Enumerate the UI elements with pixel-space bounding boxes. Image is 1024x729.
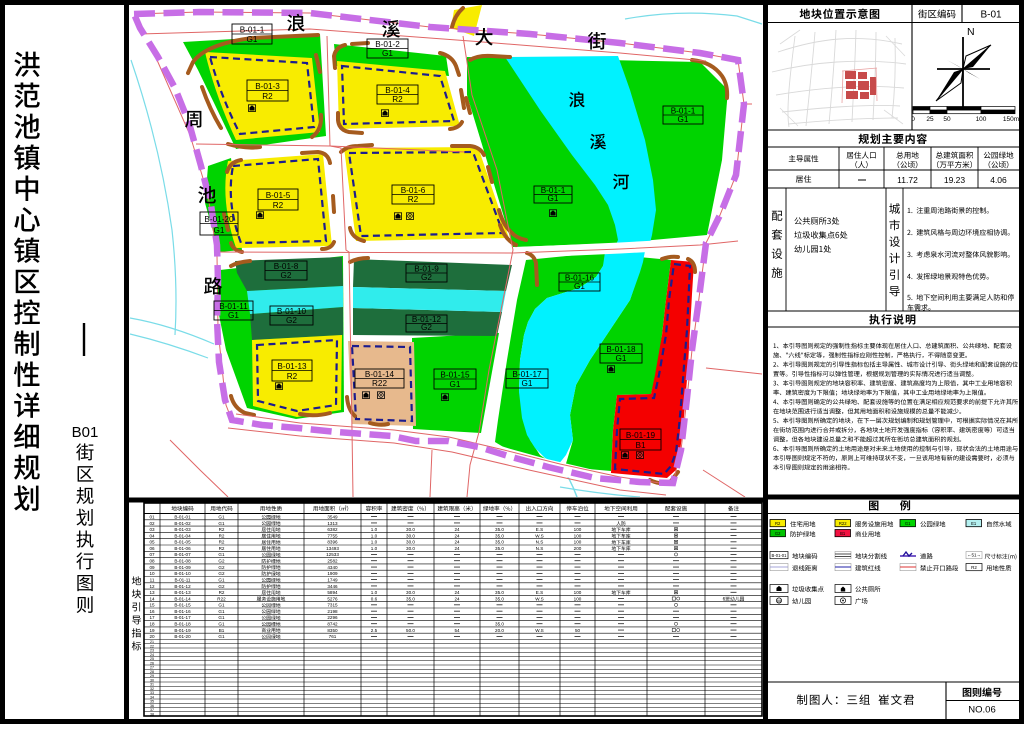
svg-text:G1: G1 xyxy=(382,49,393,58)
svg-text:B-01-10: B-01-10 xyxy=(277,307,307,316)
svg-text:G1: G1 xyxy=(214,226,225,235)
svg-text:35.0: 35.0 xyxy=(495,527,504,532)
svg-text:20: 20 xyxy=(149,634,155,639)
svg-text:G2: G2 xyxy=(218,559,225,564)
svg-text:5894: 5894 xyxy=(327,590,338,595)
svg-text:35.0: 35.0 xyxy=(495,546,504,551)
svg-text:B-01-12: B-01-12 xyxy=(174,584,191,589)
svg-text:01: 01 xyxy=(149,514,155,519)
svg-text:G1: G1 xyxy=(247,35,258,44)
svg-text:100: 100 xyxy=(976,116,987,123)
svg-text:B-01-19: B-01-19 xyxy=(174,628,191,633)
svg-text:24: 24 xyxy=(454,540,460,545)
svg-text:←51→: ←51→ xyxy=(967,553,981,558)
svg-text:B1: B1 xyxy=(840,531,846,536)
svg-text:761: 761 xyxy=(329,634,337,639)
svg-text:1.0: 1.0 xyxy=(371,590,378,595)
svg-text:19.23: 19.23 xyxy=(944,175,966,185)
svg-text:1.0: 1.0 xyxy=(371,527,378,532)
svg-text:B-01-15: B-01-15 xyxy=(174,603,191,608)
svg-text:G2: G2 xyxy=(421,323,432,332)
svg-text:B-01-13: B-01-13 xyxy=(174,590,191,595)
svg-text:06: 06 xyxy=(149,546,155,551)
svg-text:8396: 8396 xyxy=(327,540,338,545)
svg-text:17: 17 xyxy=(149,615,155,620)
svg-text:G1: G1 xyxy=(678,115,689,124)
svg-text:G1: G1 xyxy=(218,634,225,639)
svg-text:G2: G2 xyxy=(421,273,432,282)
svg-text:B-01-20: B-01-20 xyxy=(174,634,191,639)
svg-text:R22: R22 xyxy=(372,379,387,388)
svg-text:1749: 1749 xyxy=(327,577,338,582)
svg-text:08: 08 xyxy=(149,559,155,564)
svg-text:G2: G2 xyxy=(286,316,297,325)
svg-text:2296: 2296 xyxy=(327,615,338,620)
svg-text:6382: 6382 xyxy=(327,527,338,532)
svg-text:G1: G1 xyxy=(218,577,225,582)
svg-text:13: 13 xyxy=(149,590,155,595)
svg-text:35.0: 35.0 xyxy=(495,533,504,538)
svg-text:50.0: 50.0 xyxy=(406,628,415,633)
svg-text:G1: G1 xyxy=(218,603,225,608)
svg-text:G1: G1 xyxy=(548,194,559,203)
svg-text:B-01-20: B-01-20 xyxy=(204,215,234,224)
svg-text:30.0: 30.0 xyxy=(406,546,415,551)
svg-text:11.72: 11.72 xyxy=(897,175,918,185)
svg-text:19: 19 xyxy=(149,628,155,633)
svg-text:200: 200 xyxy=(574,546,582,551)
svg-text:B-01-06: B-01-06 xyxy=(174,546,191,551)
svg-text:2.5: 2.5 xyxy=(371,628,378,633)
svg-text:02: 02 xyxy=(149,521,155,526)
svg-text:R2: R2 xyxy=(219,546,225,551)
svg-text:R2: R2 xyxy=(219,590,225,595)
svg-text:12: 12 xyxy=(149,584,155,589)
svg-text:B-01-6: B-01-6 xyxy=(401,186,426,195)
svg-text:N.S: N.S xyxy=(536,540,544,545)
svg-text:B-01-14: B-01-14 xyxy=(365,370,395,379)
svg-text:30.0: 30.0 xyxy=(406,527,415,532)
svg-text:8742: 8742 xyxy=(327,622,338,627)
svg-text:N.S: N.S xyxy=(536,546,544,551)
svg-text:2582: 2582 xyxy=(327,559,338,564)
svg-text:R2: R2 xyxy=(392,95,403,104)
svg-text:NO.06: NO.06 xyxy=(968,705,995,716)
svg-text:B-01-11: B-01-11 xyxy=(219,302,248,311)
svg-text:24: 24 xyxy=(454,527,460,532)
svg-text:5276: 5276 xyxy=(327,596,338,601)
svg-text:G1: G1 xyxy=(218,609,225,614)
svg-text:B-01-02: B-01-02 xyxy=(174,521,191,526)
svg-text:B-01-01: B-01-01 xyxy=(174,514,191,519)
svg-text:B-01-8: B-01-8 xyxy=(274,262,299,271)
svg-text:B-01-16: B-01-16 xyxy=(174,609,191,614)
svg-text:G1: G1 xyxy=(218,615,225,620)
svg-text:16: 16 xyxy=(149,609,155,614)
svg-text:G2: G2 xyxy=(775,531,781,536)
svg-text:07: 07 xyxy=(149,552,155,557)
svg-text:7755: 7755 xyxy=(327,533,338,538)
svg-text:35.0: 35.0 xyxy=(495,590,504,595)
svg-text:100: 100 xyxy=(574,590,582,595)
svg-text:B-01-18: B-01-18 xyxy=(606,345,636,354)
svg-text:G2: G2 xyxy=(218,565,225,570)
svg-text:10: 10 xyxy=(149,571,155,576)
svg-text:B-01-14: B-01-14 xyxy=(174,596,191,601)
svg-text:G2: G2 xyxy=(218,571,225,576)
svg-text:B-01-04: B-01-04 xyxy=(174,533,191,538)
svg-text:G1: G1 xyxy=(228,311,239,320)
svg-text:R2: R2 xyxy=(219,533,225,538)
svg-text:3446: 3446 xyxy=(327,584,338,589)
svg-text:4340: 4340 xyxy=(327,565,338,570)
svg-text:B-01-10: B-01-10 xyxy=(174,571,191,576)
svg-text:24: 24 xyxy=(454,533,460,538)
svg-text:1.0: 1.0 xyxy=(371,533,378,538)
svg-text:13493: 13493 xyxy=(326,546,339,551)
svg-text:35.0: 35.0 xyxy=(495,622,504,627)
svg-text:150m: 150m xyxy=(1003,116,1019,123)
svg-text:2198: 2198 xyxy=(327,609,338,614)
svg-text:24: 24 xyxy=(454,596,460,601)
svg-text:38: 38 xyxy=(150,712,154,716)
svg-text:R2: R2 xyxy=(775,521,781,526)
svg-text:R2: R2 xyxy=(219,527,225,532)
svg-text:N: N xyxy=(967,26,975,38)
svg-text:B-01-17: B-01-17 xyxy=(174,615,191,620)
svg-text:B-01: B-01 xyxy=(980,10,1002,21)
svg-text:B-01-08: B-01-08 xyxy=(174,559,191,564)
svg-text:B-01-07: B-01-07 xyxy=(174,552,191,557)
svg-text:25: 25 xyxy=(926,116,934,123)
svg-text:0: 0 xyxy=(911,116,915,123)
svg-text:E.S: E.S xyxy=(536,527,543,532)
svg-text:24: 24 xyxy=(454,590,460,595)
svg-text:G2: G2 xyxy=(218,584,225,589)
svg-text:B-01-01: B-01-01 xyxy=(772,553,788,558)
svg-text:R2: R2 xyxy=(408,195,419,204)
svg-text:W.S: W.S xyxy=(535,533,543,538)
svg-text:1313: 1313 xyxy=(327,521,338,526)
svg-text:35.0: 35.0 xyxy=(495,540,504,545)
svg-text:35.0: 35.0 xyxy=(495,596,504,601)
svg-text:30.0: 30.0 xyxy=(406,540,415,545)
svg-text:B1: B1 xyxy=(635,441,645,450)
svg-text:1.0: 1.0 xyxy=(371,546,378,551)
svg-text:G1: G1 xyxy=(905,521,911,526)
svg-text:1909: 1909 xyxy=(327,571,338,576)
svg-text:03: 03 xyxy=(149,527,155,532)
svg-text:B-01-17: B-01-17 xyxy=(512,370,542,379)
svg-text:R2: R2 xyxy=(219,540,225,545)
svg-text:G2: G2 xyxy=(281,271,292,280)
svg-text:G1: G1 xyxy=(616,354,627,363)
svg-text:E.S: E.S xyxy=(536,590,543,595)
svg-text:35.0: 35.0 xyxy=(406,596,415,601)
svg-text:B-01-13: B-01-13 xyxy=(277,362,307,371)
svg-text:7315: 7315 xyxy=(327,603,338,608)
svg-text:G1: G1 xyxy=(522,379,533,388)
svg-text:B-01-4: B-01-4 xyxy=(385,86,410,95)
svg-text:30.0: 30.0 xyxy=(406,590,415,595)
svg-text:R2: R2 xyxy=(262,92,273,101)
svg-text:30.0: 30.0 xyxy=(406,533,415,538)
svg-text:G1: G1 xyxy=(218,521,225,526)
svg-text:12533: 12533 xyxy=(326,552,339,557)
svg-text:18: 18 xyxy=(149,622,155,627)
svg-text:100: 100 xyxy=(574,540,582,545)
svg-text:B-01-03: B-01-03 xyxy=(174,527,191,532)
svg-text:20.0: 20.0 xyxy=(495,628,504,633)
svg-text:4.06: 4.06 xyxy=(990,175,1007,185)
svg-text:54: 54 xyxy=(454,628,460,633)
svg-text:8350: 8350 xyxy=(327,628,338,633)
svg-text:G1: G1 xyxy=(218,514,225,519)
svg-text:B-01-3: B-01-3 xyxy=(255,82,280,91)
svg-text:G1: G1 xyxy=(574,282,585,291)
svg-text:R2: R2 xyxy=(971,565,977,570)
svg-text:14: 14 xyxy=(149,596,155,601)
svg-text:R22: R22 xyxy=(839,521,847,526)
svg-text:W.S: W.S xyxy=(535,628,543,633)
svg-text:R2: R2 xyxy=(273,201,284,210)
svg-text:B-01-05: B-01-05 xyxy=(174,540,191,545)
svg-text:3549: 3549 xyxy=(327,514,338,519)
svg-text:15: 15 xyxy=(149,603,155,608)
svg-text:B-01-1: B-01-1 xyxy=(240,25,265,34)
svg-text:B-01-15: B-01-15 xyxy=(440,370,470,379)
svg-text:B-01-19: B-01-19 xyxy=(626,431,656,440)
svg-text:B-01-18: B-01-18 xyxy=(174,622,191,627)
svg-text:E1: E1 xyxy=(971,521,977,526)
svg-text:B-01-11: B-01-11 xyxy=(174,577,190,582)
svg-text:09: 09 xyxy=(149,565,155,570)
svg-text:B-01-5: B-01-5 xyxy=(266,191,291,200)
svg-text:05: 05 xyxy=(149,540,155,545)
svg-text:100: 100 xyxy=(574,527,582,532)
svg-text:G1: G1 xyxy=(450,380,461,389)
svg-text:B-01-2: B-01-2 xyxy=(375,40,400,49)
svg-text:W.S: W.S xyxy=(535,596,543,601)
svg-text:G1: G1 xyxy=(218,552,225,557)
svg-text:1.0: 1.0 xyxy=(371,540,378,545)
svg-text:B-01-09: B-01-09 xyxy=(174,565,191,570)
svg-text:B01: B01 xyxy=(72,424,99,441)
svg-text:04: 04 xyxy=(149,533,155,538)
svg-text:R2: R2 xyxy=(287,372,298,381)
svg-text:100: 100 xyxy=(574,533,582,538)
svg-text:24: 24 xyxy=(454,546,460,551)
svg-text:11: 11 xyxy=(150,577,155,582)
svg-text:50: 50 xyxy=(575,628,581,633)
svg-text:G1: G1 xyxy=(218,622,225,627)
svg-text:B1: B1 xyxy=(219,628,225,633)
svg-text:R22: R22 xyxy=(217,596,226,601)
svg-text:0.6: 0.6 xyxy=(371,596,378,601)
svg-text:50: 50 xyxy=(943,116,951,123)
svg-text:100: 100 xyxy=(574,596,582,601)
